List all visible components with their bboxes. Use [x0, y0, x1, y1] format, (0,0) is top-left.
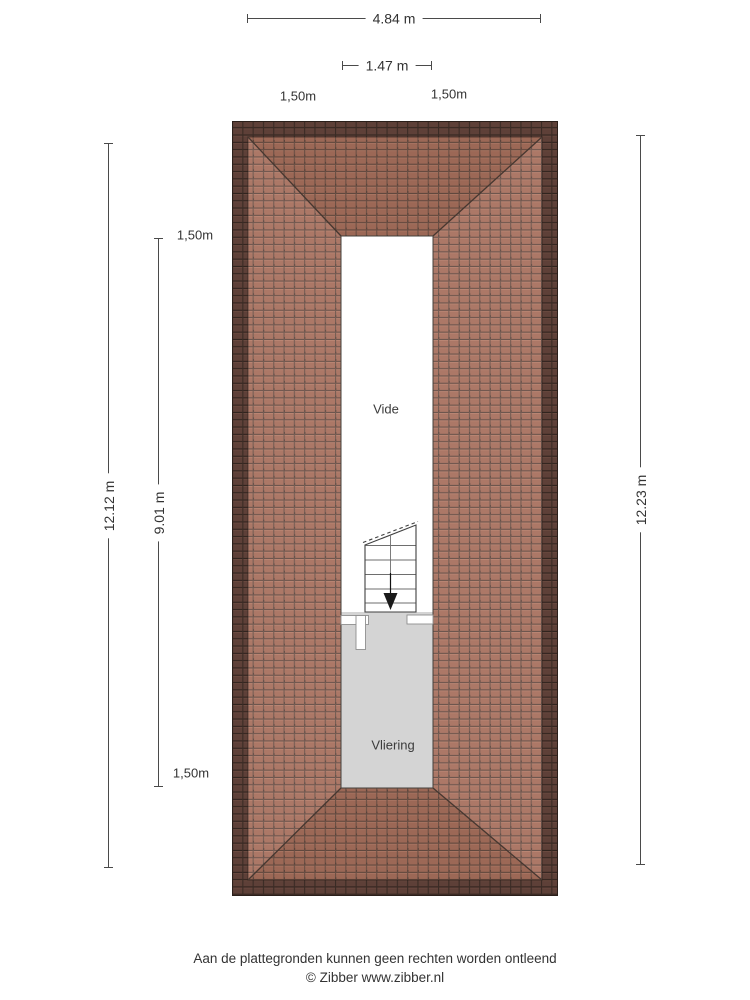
roof-face-left — [248, 137, 341, 880]
dim-tick — [154, 786, 163, 787]
dim-tick — [540, 14, 541, 23]
dim-tick — [104, 867, 113, 868]
floorplan-canvas: 4.84 m 1.47 m 1,50m 1,50m 12.12 m 9.01 m… — [0, 0, 750, 1000]
roof-plan — [232, 121, 558, 896]
footer-disclaimer: Aan de plattegronden kunnen geen rechten… — [0, 949, 750, 968]
dim-left-total: 12.12 m — [108, 143, 109, 868]
room-label-vide: Vide — [373, 402, 399, 417]
dim-tick — [247, 14, 248, 23]
room-label-vliering: Vliering — [371, 738, 414, 753]
dim-tick — [342, 61, 343, 70]
footer: Aan de plattegronden kunnen geen rechten… — [0, 949, 750, 987]
offset-top-right-label: 1,50m — [431, 87, 467, 102]
dim-tick — [636, 864, 645, 865]
offset-top-left-label: 1,50m — [280, 89, 316, 104]
footer-copyright: © Zibber www.zibber.nl — [0, 968, 750, 987]
dim-tick — [636, 135, 645, 136]
dim-right-total-label: 12.23 m — [633, 468, 649, 533]
dim-tick — [431, 61, 432, 70]
dim-opening-width-label: 1.47 m — [359, 57, 416, 73]
dim-left-total-label: 12.12 m — [101, 473, 117, 538]
dim-right-total: 12.23 m — [640, 135, 641, 865]
dim-opening-width: 1.47 m — [342, 65, 432, 66]
roof-face-right — [433, 137, 542, 880]
roof-plan-svg — [232, 121, 558, 896]
dim-top-width-label: 4.84 m — [366, 10, 423, 26]
dim-tick — [154, 238, 163, 239]
wall-tab-right — [407, 615, 433, 624]
dim-left-inner: 9.01 m — [158, 238, 159, 787]
dim-left-inner-label: 9.01 m — [151, 484, 167, 541]
offset-left-bottom-label: 1,50m — [173, 766, 209, 781]
dim-top-width: 4.84 m — [247, 18, 541, 19]
offset-left-top-label: 1,50m — [177, 228, 213, 243]
dim-tick — [104, 143, 113, 144]
wall-tab-vertical — [356, 616, 366, 650]
vliering-area — [342, 612, 433, 788]
